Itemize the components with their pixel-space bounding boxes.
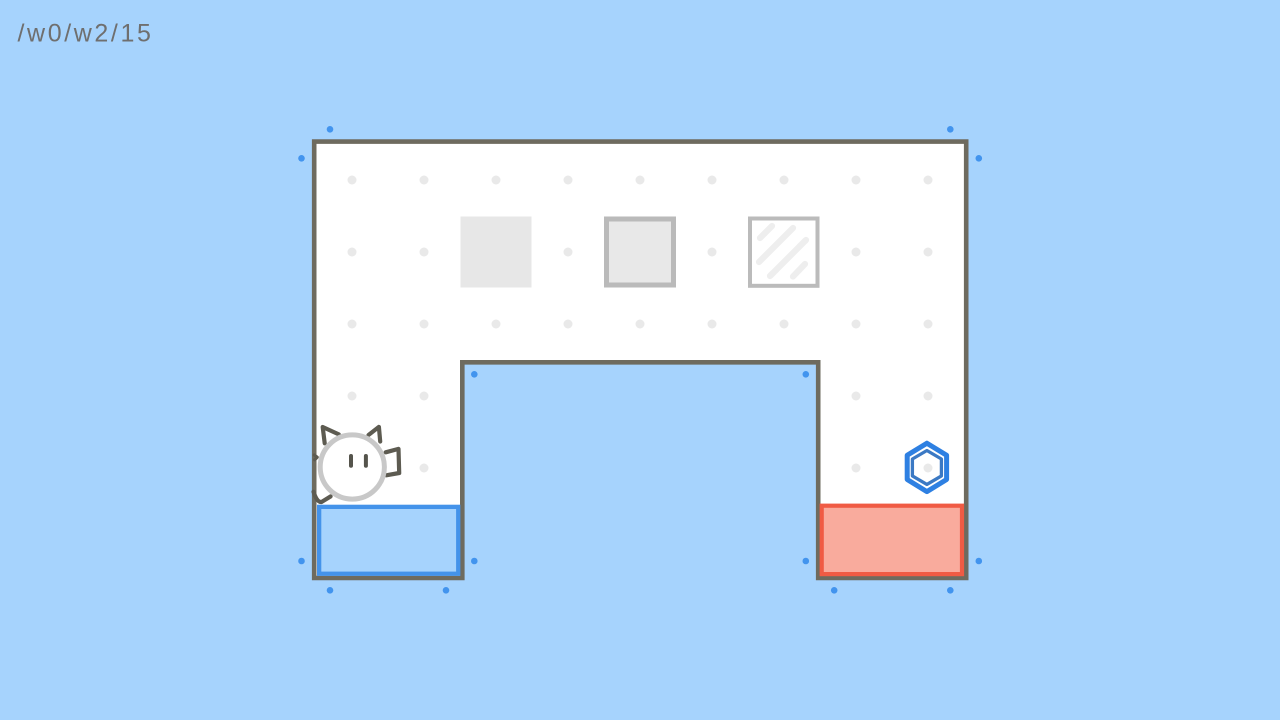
svg-text:/w0/w2/15: /w0/w2/15: [18, 20, 154, 48]
